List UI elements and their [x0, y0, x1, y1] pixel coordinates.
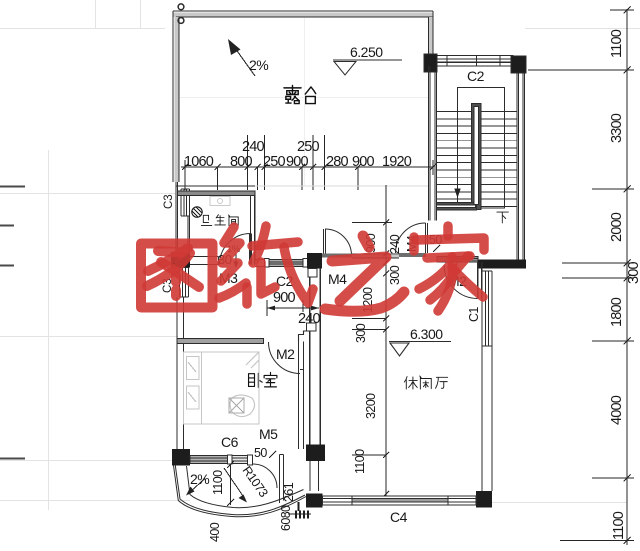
svg-text:M5: M5	[259, 426, 278, 442]
svg-text:6.300: 6.300	[410, 326, 443, 342]
svg-text:400: 400	[208, 522, 222, 542]
svg-text:C1: C1	[467, 307, 481, 322]
svg-text:C4: C4	[390, 509, 408, 525]
svg-text:250: 250	[263, 154, 286, 170]
svg-text:M4: M4	[328, 271, 347, 287]
svg-text:2000: 2000	[609, 212, 625, 242]
svg-text:250: 250	[297, 139, 320, 155]
svg-text:900: 900	[352, 154, 375, 170]
svg-text:3200: 3200	[364, 393, 378, 419]
svg-text:6.250: 6.250	[350, 44, 383, 60]
svg-text:C6: C6	[221, 434, 239, 450]
svg-text:280: 280	[326, 154, 349, 170]
svg-text:300: 300	[354, 323, 368, 343]
svg-text:300: 300	[626, 261, 640, 284]
svg-text:900: 900	[273, 290, 296, 306]
svg-text:1060: 1060	[184, 154, 214, 170]
svg-text:800: 800	[230, 154, 253, 170]
svg-text:1100: 1100	[353, 449, 367, 474]
svg-text:1920: 1920	[382, 154, 412, 170]
svg-text:1100: 1100	[211, 470, 225, 495]
svg-text:2%: 2%	[190, 471, 209, 487]
svg-text:300: 300	[388, 265, 402, 285]
svg-text:1100: 1100	[611, 511, 627, 540]
svg-text:C2: C2	[467, 68, 485, 84]
svg-text:4000: 4000	[609, 395, 625, 425]
svg-text:M2: M2	[276, 346, 295, 362]
svg-text:3300: 3300	[609, 113, 625, 143]
svg-text:2%: 2%	[249, 57, 268, 73]
svg-text:240: 240	[242, 139, 265, 155]
svg-text:50: 50	[254, 446, 267, 460]
svg-text:C3: C3	[163, 194, 175, 209]
svg-text:261: 261	[282, 482, 296, 502]
svg-text:1100: 1100	[609, 29, 625, 58]
svg-text:240: 240	[388, 234, 402, 254]
svg-text:1800: 1800	[609, 297, 625, 327]
svg-text:6080: 6080	[279, 505, 293, 531]
svg-text:900: 900	[286, 154, 309, 170]
